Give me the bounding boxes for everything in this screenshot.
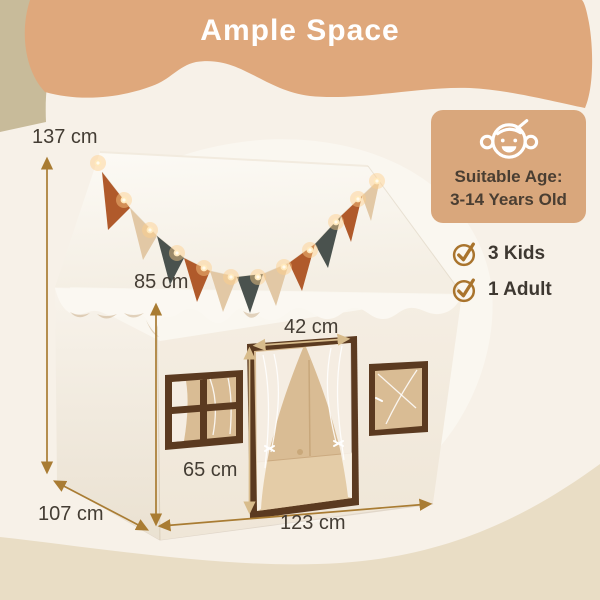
dim-door-height-label: 65 cm: [183, 459, 237, 482]
product-infographic: Ample Space 137 cm 85 cm 42 cm 65 cm 107…: [0, 0, 600, 600]
age-card-text: Suitable Age: 3-14 Years Old: [450, 166, 567, 212]
dim-width-label: 123 cm: [280, 512, 346, 535]
dim-door-width-label: 42 cm: [284, 316, 338, 339]
door: [247, 336, 359, 519]
dimension-arrows: [47, 160, 429, 529]
age-card: Suitable Age: 3-14 Years Old: [431, 110, 586, 223]
check-circle-icon: [452, 240, 479, 267]
age-card-line2: 3-14 Years Old: [450, 189, 567, 212]
dim-overall-height-label: 137 cm: [32, 126, 98, 149]
tent-roof: [55, 152, 462, 294]
string-lights: [90, 155, 385, 285]
age-card-line1: Suitable Age:: [450, 166, 567, 189]
right-window: [369, 361, 428, 436]
capacity-kids-label: 3 Kids: [488, 243, 545, 265]
capacity-adult-label: 1 Adult: [488, 279, 552, 301]
baby-face-icon: [477, 116, 541, 166]
check-circle-icon: [452, 276, 479, 303]
dim-wall-height-label: 85 cm: [134, 271, 188, 294]
dim-depth-label: 107 cm: [38, 503, 104, 526]
tent-valance: [55, 288, 462, 334]
capacity-list: 3 Kids 1 Adult: [452, 240, 552, 303]
capacity-item-kids: 3 Kids: [452, 240, 552, 267]
tent-graphic: [55, 152, 462, 540]
arrow-door-width: [256, 339, 347, 346]
left-window: [165, 370, 243, 450]
page-title: Ample Space: [0, 14, 600, 48]
capacity-item-adult: 1 Adult: [452, 276, 552, 303]
